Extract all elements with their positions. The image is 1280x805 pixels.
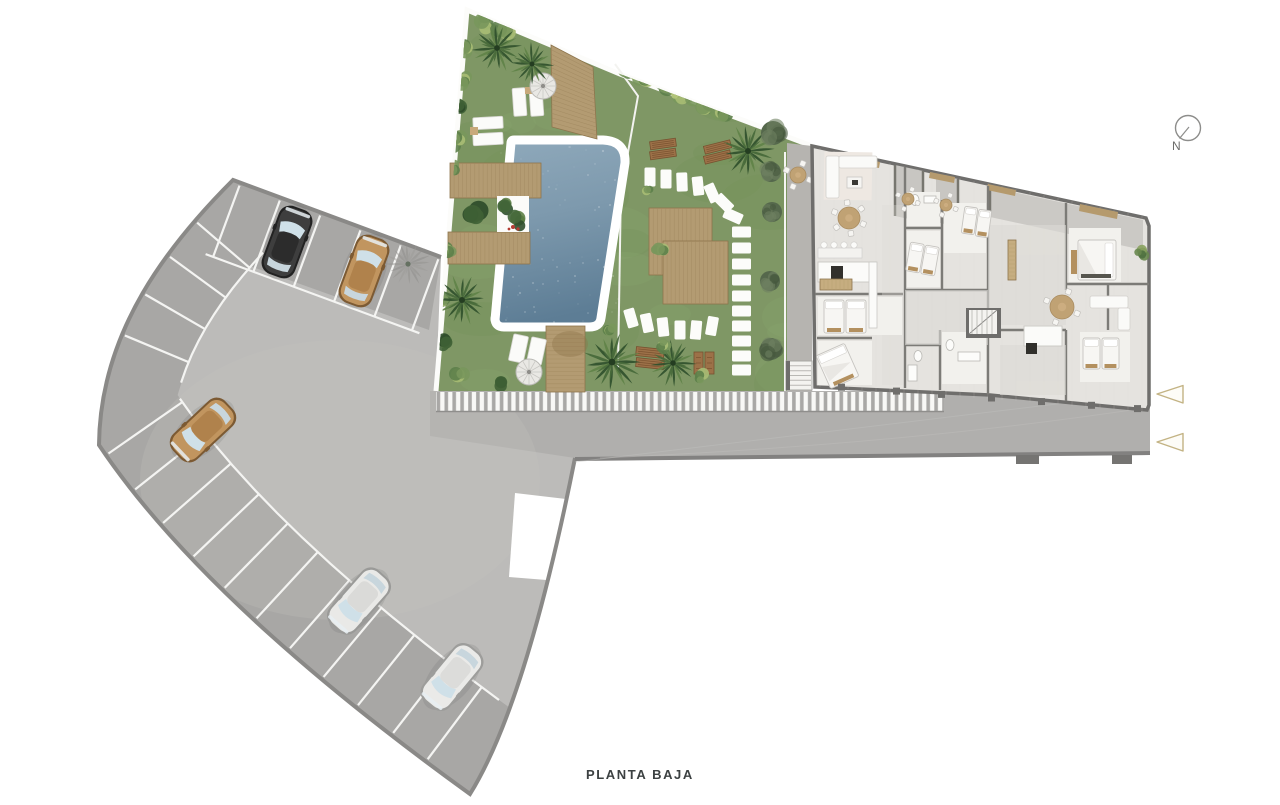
svg-text:N: N [1172, 139, 1181, 153]
svg-text:PLANTA BAJA: PLANTA BAJA [586, 767, 694, 782]
